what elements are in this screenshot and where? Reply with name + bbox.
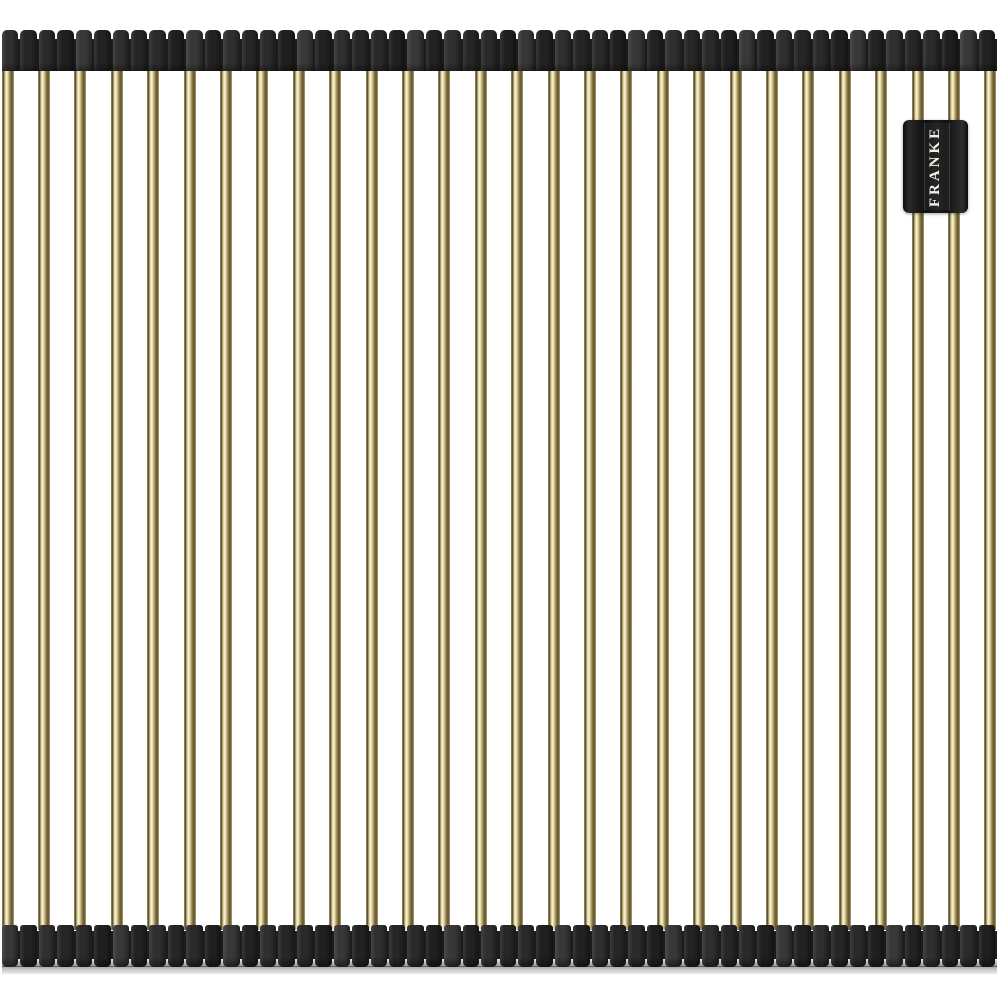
silicone-rib <box>831 925 847 967</box>
silicone-rib <box>426 925 442 967</box>
silicone-rib <box>757 30 773 71</box>
brass-rod <box>329 62 341 930</box>
brass-rod <box>184 62 196 930</box>
silicone-rib <box>776 30 792 71</box>
silicone-rib <box>407 925 423 967</box>
silicone-rib <box>905 30 921 71</box>
silicone-rib <box>647 30 663 71</box>
silicone-rib <box>57 30 73 71</box>
silicone-rib <box>223 925 239 967</box>
silicone-rib <box>2 925 18 967</box>
brass-rod <box>438 62 450 930</box>
silicone-rib <box>721 925 737 967</box>
silicone-rib <box>960 925 976 967</box>
silicone-rib <box>536 925 552 967</box>
silicone-rib <box>205 30 221 71</box>
brass-rod <box>984 62 996 930</box>
brass-rod <box>875 62 887 930</box>
silicone-rib <box>979 30 995 71</box>
silicone-rib <box>757 925 773 967</box>
silicone-rib <box>444 30 460 71</box>
silicone-rib <box>20 30 36 71</box>
brass-rod <box>2 62 14 930</box>
silicone-rib <box>868 925 884 967</box>
silicone-rib <box>242 30 258 71</box>
silicone-rib <box>647 925 663 967</box>
silicone-rib <box>315 30 331 71</box>
silicone-rib <box>113 925 129 967</box>
silicone-rib <box>923 30 939 71</box>
silicone-rib <box>389 925 405 967</box>
silicone-rib <box>463 30 479 71</box>
brass-rod <box>475 62 487 930</box>
silicone-rib <box>94 925 110 967</box>
silicone-rib <box>334 925 350 967</box>
brass-rod <box>511 62 523 930</box>
silicone-rib <box>776 925 792 967</box>
silicone-rib <box>942 30 958 71</box>
silicone-rib <box>315 925 331 967</box>
silicone-rib <box>979 925 995 967</box>
silicone-rib <box>297 925 313 967</box>
silicone-rib <box>186 30 202 71</box>
silicone-rib <box>739 925 755 967</box>
brass-rod <box>402 62 414 930</box>
silicone-rib <box>794 925 810 967</box>
silicone-rib <box>905 925 921 967</box>
top-silicone-band <box>2 30 997 71</box>
brass-rod <box>584 62 596 930</box>
silicone-rib <box>149 925 165 967</box>
silicone-rib <box>481 925 497 967</box>
silicone-rib <box>481 30 497 71</box>
brass-rod <box>293 62 305 930</box>
silicone-rib <box>684 30 700 71</box>
silicone-rib <box>886 30 902 71</box>
silicone-rib <box>665 925 681 967</box>
silicone-rib <box>739 30 755 71</box>
bottom-silicone-band <box>2 925 997 967</box>
silicone-rib <box>39 925 55 967</box>
silicone-rib <box>352 30 368 71</box>
brass-rod <box>548 62 560 930</box>
silicone-rib <box>39 30 55 71</box>
silicone-rib <box>702 30 718 71</box>
brass-rod <box>766 62 778 930</box>
silicone-rib <box>942 925 958 967</box>
silicone-rib <box>278 30 294 71</box>
silicone-rib <box>592 925 608 967</box>
franke-badge: FRANKE <box>903 120 968 213</box>
brass-rod <box>220 62 232 930</box>
silicone-rib <box>94 30 110 71</box>
silicone-rib <box>168 30 184 71</box>
brass-rod <box>366 62 378 930</box>
silicone-rib <box>794 30 810 71</box>
brass-rod <box>730 62 742 930</box>
silicone-rib <box>573 925 589 967</box>
silicone-rib <box>205 925 221 967</box>
brass-rod <box>147 62 159 930</box>
brass-rod <box>839 62 851 930</box>
silicone-rib <box>149 30 165 71</box>
silicone-rib <box>628 30 644 71</box>
silicone-rib <box>850 925 866 967</box>
silicone-rib <box>610 30 626 71</box>
silicone-rib <box>168 925 184 967</box>
silicone-rib <box>389 30 405 71</box>
brand-logo-text: FRANKE <box>927 126 944 207</box>
silicone-rib <box>463 925 479 967</box>
silicone-rib <box>684 925 700 967</box>
silicone-rib <box>886 925 902 967</box>
silicone-rib <box>2 30 18 71</box>
silicone-rib <box>628 925 644 967</box>
silicone-rib <box>57 925 73 967</box>
silicone-rib <box>850 30 866 71</box>
brass-rod <box>38 62 50 930</box>
silicone-rib <box>352 925 368 967</box>
silicone-rib <box>518 30 534 71</box>
silicone-rib <box>260 925 276 967</box>
silicone-rib <box>278 925 294 967</box>
silicone-rib <box>500 30 516 71</box>
brass-rod <box>74 62 86 930</box>
silicone-rib <box>407 30 423 71</box>
silicone-rib <box>665 30 681 71</box>
silicone-rib <box>113 30 129 71</box>
silicone-rib <box>868 30 884 71</box>
brass-rod <box>657 62 669 930</box>
silicone-rib <box>131 30 147 71</box>
silicone-rib <box>536 30 552 71</box>
silicone-rib <box>242 925 258 967</box>
silicone-rib <box>555 925 571 967</box>
silicone-rib <box>186 925 202 967</box>
brass-rod <box>256 62 268 930</box>
brass-rod <box>802 62 814 930</box>
silicone-rib <box>555 30 571 71</box>
silicone-rib <box>297 30 313 71</box>
silicone-rib <box>518 925 534 967</box>
silicone-rib <box>444 925 460 967</box>
brass-rod <box>693 62 705 930</box>
silicone-rib <box>831 30 847 71</box>
silicone-rib <box>813 925 829 967</box>
silicone-rib <box>223 30 239 71</box>
floor-shadow <box>2 966 997 974</box>
silicone-rib <box>426 30 442 71</box>
silicone-rib <box>960 30 976 71</box>
silicone-rib <box>20 925 36 967</box>
silicone-rib <box>371 925 387 967</box>
silicone-rib <box>76 30 92 71</box>
brass-rod <box>620 62 632 930</box>
silicone-rib <box>131 925 147 967</box>
silicone-rib <box>813 30 829 71</box>
silicone-rib <box>702 925 718 967</box>
silicone-rib <box>334 30 350 71</box>
silicone-rib <box>500 925 516 967</box>
silicone-rib <box>721 30 737 71</box>
silicone-rib <box>610 925 626 967</box>
silicone-rib <box>573 30 589 71</box>
product-photo: FRANKE <box>0 0 1000 1000</box>
silicone-rib <box>592 30 608 71</box>
silicone-rib <box>371 30 387 71</box>
silicone-rib <box>260 30 276 71</box>
silicone-rib <box>76 925 92 967</box>
silicone-rib <box>923 925 939 967</box>
brass-rod <box>111 62 123 930</box>
